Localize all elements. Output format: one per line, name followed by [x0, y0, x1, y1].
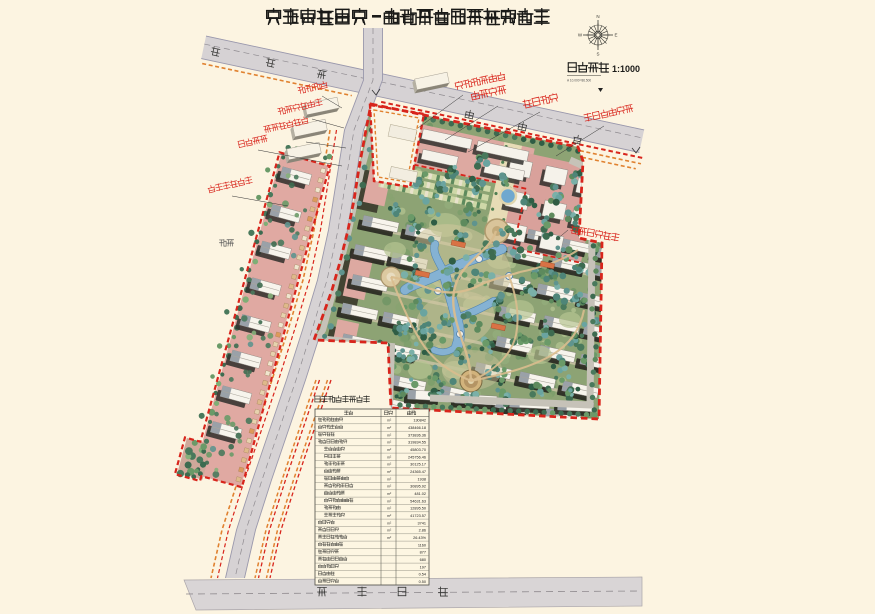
- svg-text:0.50: 0.50: [419, 580, 426, 584]
- svg-text:S: S: [596, 52, 599, 57]
- svg-text:373836.36: 373836.36: [408, 433, 426, 437]
- svg-text:130842: 130842: [413, 419, 426, 423]
- svg-text:A 10.000=86.500: A 10.000=86.500: [567, 79, 591, 83]
- svg-text:438466.18: 438466.18: [408, 426, 426, 430]
- svg-text:1160: 1160: [418, 543, 426, 547]
- svg-text:54631.63: 54631.63: [410, 499, 426, 503]
- svg-text:0.54: 0.54: [419, 573, 426, 577]
- svg-text:481.02: 481.02: [414, 492, 426, 496]
- svg-text:680: 680: [420, 558, 426, 562]
- svg-text:N: N: [596, 14, 599, 19]
- svg-text:3741: 3741: [418, 521, 426, 525]
- svg-text:24365.47: 24365.47: [410, 470, 426, 474]
- svg-text:41723.57: 41723.57: [410, 514, 426, 518]
- svg-text:1:1000: 1:1000: [612, 64, 640, 74]
- svg-text:1938: 1938: [418, 477, 426, 481]
- svg-text:2.86: 2.86: [419, 529, 426, 533]
- svg-text:319834.55: 319834.55: [408, 441, 426, 445]
- svg-text:245756.46: 245756.46: [408, 455, 426, 459]
- svg-text:45803.70: 45803.70: [410, 448, 426, 452]
- svg-text:30895.92: 30895.92: [410, 485, 426, 489]
- svg-text:877: 877: [420, 551, 426, 555]
- svg-text:197: 197: [420, 565, 426, 569]
- svg-text:12895.50: 12895.50: [410, 507, 426, 511]
- svg-text:E: E: [614, 33, 617, 38]
- svg-text:26.43%: 26.43%: [413, 536, 427, 540]
- svg-text:30125.17: 30125.17: [410, 463, 426, 467]
